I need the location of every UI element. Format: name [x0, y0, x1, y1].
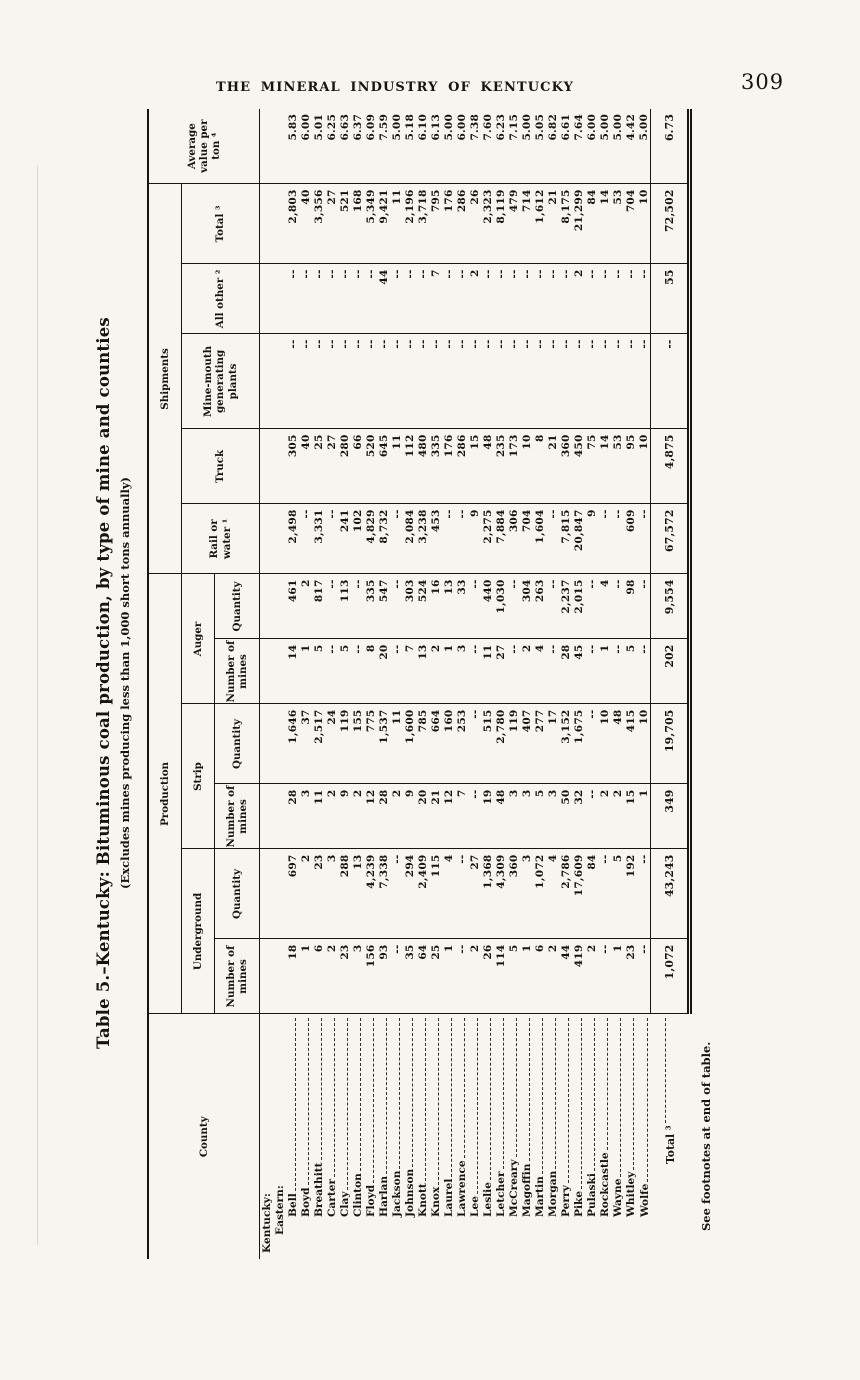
leader-line: [307, 1019, 309, 1186]
all-other-cell: --: [507, 264, 520, 334]
total-auger-quantity: 9,554: [651, 574, 690, 639]
leader-line: [541, 1019, 543, 1175]
table-row: Wayne 1 5 2 48 -- -- -- 53 -- -- 53 5.00: [611, 109, 624, 1259]
leader-line: [664, 1019, 666, 1124]
average-value-cell: 7.64: [572, 109, 585, 184]
table-row: Clay 23 288 9 119 5 113 241 280 -- -- 52…: [338, 109, 351, 1259]
mine-mouth-cell: --: [338, 334, 351, 429]
all-other-cell: --: [520, 264, 533, 334]
county-label: Boyd: [301, 1187, 312, 1259]
underground-quantity-cell: 4,239: [364, 849, 377, 939]
county-label: McCreary: [509, 1159, 520, 1259]
leader-line: [515, 1019, 517, 1158]
county-label: Rockcastle: [600, 1152, 611, 1259]
auger-quantity-cell: 524: [416, 574, 429, 639]
county-cell: McCreary: [507, 1014, 520, 1259]
table-row: Lawrence -- -- 7 253 3 33 -- 286 -- -- 2…: [455, 109, 468, 1259]
underground-quantity-cell: 2,409: [416, 849, 429, 939]
mine-mouth-cell: --: [559, 334, 572, 429]
underground-quantity-cell: 23: [312, 849, 325, 939]
truck-cell: 27: [325, 429, 338, 504]
truck-cell: 48: [481, 429, 494, 504]
auger-quantity-cell: [273, 574, 286, 639]
county-cell: Leslie: [481, 1014, 494, 1259]
strip-quantity-cell: 1,600: [403, 704, 416, 784]
total-cell: 3,356: [312, 184, 325, 264]
rail-or-water-cell: --: [299, 504, 312, 574]
county-cell: Rockcastle: [598, 1014, 611, 1259]
mine-mouth-cell: --: [572, 334, 585, 429]
auger-quantity-cell: 1,030: [494, 574, 507, 639]
county-label: Pike: [574, 1191, 585, 1259]
underground-number-cell: 1: [611, 939, 624, 1014]
auger-number-cell: 1: [442, 639, 455, 704]
mine-mouth-cell: --: [533, 334, 546, 429]
average-value-cell: [260, 109, 274, 184]
rail-or-water-cell: 20,847: [572, 504, 585, 574]
underground-quantity-cell: 5: [611, 849, 624, 939]
total-cell: 40: [299, 184, 312, 264]
table-footnote: See footnotes at end of table.: [699, 107, 713, 1231]
table-row: Floyd 156 4,239 12 775 8 335 4,829 520 -…: [364, 109, 377, 1259]
strip-number-cell: 21: [429, 784, 442, 849]
underground-quantity-cell: 288: [338, 849, 351, 939]
underground-number-cell: 25: [429, 939, 442, 1014]
auger-number-cell: 13: [416, 639, 429, 704]
running-head: THE MINERAL INDUSTRY OF KENTUCKY: [216, 80, 574, 95]
auger-quantity-cell: 303: [403, 574, 416, 639]
all-other-cell: --: [637, 264, 651, 334]
auger-number-cell: --: [390, 639, 403, 704]
table-header: County Production Shipments Average valu…: [148, 109, 260, 1259]
mine-mouth-cell: --: [442, 334, 455, 429]
underground-quantity-cell: 3: [325, 849, 338, 939]
strip-quantity-cell: [273, 704, 286, 784]
table-footer: Total ³ 1,072 43,243 349 19,705 202 9,55…: [651, 109, 690, 1259]
county-label: Letcher: [496, 1171, 507, 1259]
total-cell: 714: [520, 184, 533, 264]
county-cell: Bell: [286, 1014, 299, 1259]
table-row: Letcher 114 4,309 48 2,780 27 1,030 7,88…: [494, 109, 507, 1259]
strip-number-cell: 32: [572, 784, 585, 849]
auger-quantity-cell: 2,015: [572, 574, 585, 639]
underground-quantity-cell: 2,786: [559, 849, 572, 939]
header-underground-quantity: Quantity: [215, 849, 260, 939]
auger-number-cell: --: [468, 639, 481, 704]
underground-number-cell: 1: [299, 939, 312, 1014]
leader-line: [646, 1019, 648, 1182]
auger-quantity-cell: --: [351, 574, 364, 639]
strip-quantity-cell: 3,152: [559, 704, 572, 784]
county-cell: Boyd: [299, 1014, 312, 1259]
strip-number-cell: 2: [351, 784, 364, 849]
strip-quantity-cell: 10: [637, 704, 651, 784]
truck-cell: 335: [429, 429, 442, 504]
strip-quantity-cell: 119: [338, 704, 351, 784]
all-other-cell: 2: [468, 264, 481, 334]
auger-quantity-cell: 16: [429, 574, 442, 639]
county-cell: Pulaski: [585, 1014, 598, 1259]
header-truck: Truck: [182, 429, 260, 504]
total-cell: 521: [338, 184, 351, 264]
underground-quantity-cell: 27: [468, 849, 481, 939]
auger-number-cell: 45: [572, 639, 585, 704]
mine-mouth-cell: --: [286, 334, 299, 429]
all-other-cell: --: [533, 264, 546, 334]
average-value-cell: 6.82: [546, 109, 559, 184]
all-other-cell: --: [390, 264, 403, 334]
underground-number-cell: 35: [403, 939, 416, 1014]
all-other-cell: --: [325, 264, 338, 334]
strip-quantity-cell: 24: [325, 704, 338, 784]
total-auger-number: 202: [651, 639, 690, 704]
auger-number-cell: 3: [455, 639, 468, 704]
underground-number-cell: 44: [559, 939, 572, 1014]
truck-cell: 15: [468, 429, 481, 504]
header-strip-quantity: Quantity: [215, 704, 260, 784]
underground-quantity-cell: 1,072: [533, 849, 546, 939]
auger-quantity-cell: 113: [338, 574, 351, 639]
county-label: Johnson: [405, 1169, 416, 1259]
auger-quantity-cell: 304: [520, 574, 533, 639]
strip-quantity-cell: 2,517: [312, 704, 325, 784]
average-value-cell: 4.42: [624, 109, 637, 184]
strip-quantity-cell: 1,537: [377, 704, 390, 784]
leader-line: [294, 1019, 296, 1192]
underground-quantity-cell: 4: [546, 849, 559, 939]
auger-quantity-cell: 13: [442, 574, 455, 639]
table-row: Perry 44 2,786 50 3,152 28 2,237 7,815 3…: [559, 109, 572, 1259]
all-other-cell: --: [598, 264, 611, 334]
auger-number-cell: --: [611, 639, 624, 704]
underground-quantity-cell: 4: [442, 849, 455, 939]
all-other-cell: --: [416, 264, 429, 334]
table-row: Whitley 23 192 15 415 5 98 609 95 -- -- …: [624, 109, 637, 1259]
underground-number-cell: 2: [585, 939, 598, 1014]
mine-mouth-cell: --: [637, 334, 651, 429]
total-all-other: 55: [651, 264, 690, 334]
strip-number-cell: 3: [507, 784, 520, 849]
table-row: Harlan 93 7,338 28 1,537 20 547 8,732 64…: [377, 109, 390, 1259]
leader-line: [476, 1019, 478, 1195]
truck-cell: 95: [624, 429, 637, 504]
truck-cell: 21: [546, 429, 559, 504]
strip-quantity-cell: 785: [416, 704, 429, 784]
average-value-cell: 5.18: [403, 109, 416, 184]
truck-cell: 10: [637, 429, 651, 504]
total-cell: 3,718: [416, 184, 429, 264]
mine-mouth-cell: [260, 334, 274, 429]
strip-quantity-cell: 17: [546, 704, 559, 784]
average-value-cell: 6.63: [338, 109, 351, 184]
strip-quantity-cell: 277: [533, 704, 546, 784]
strip-number-cell: 15: [624, 784, 637, 849]
table-row: Magoffin 1 3 3 407 2 304 704 10 -- -- 71…: [520, 109, 533, 1259]
county-label: Bell: [288, 1193, 299, 1259]
all-other-cell: --: [611, 264, 624, 334]
underground-quantity-cell: 3: [520, 849, 533, 939]
rail-or-water-cell: 704: [520, 504, 533, 574]
county-label: Carter: [327, 1179, 338, 1259]
scanned-document-page: THE MINERAL INDUSTRY OF KENTUCKY 309 Tab…: [0, 0, 860, 1380]
scan-gutter-artifact: [37, 165, 38, 1245]
rail-or-water-cell: 8,732: [377, 504, 390, 574]
underground-number-cell: 419: [572, 939, 585, 1014]
county-label: Harlan: [379, 1176, 390, 1259]
table-row: Carter 2 3 2 24 -- -- -- 27 -- -- 27 6.2…: [325, 109, 338, 1259]
county-cell: Clay: [338, 1014, 351, 1259]
county-cell: Letcher: [494, 1014, 507, 1259]
total-cell: 5,349: [364, 184, 377, 264]
county-label: Wayne: [613, 1179, 624, 1259]
rail-or-water-cell: 9: [585, 504, 598, 574]
mine-mouth-cell: --: [429, 334, 442, 429]
average-value-cell: 5.00: [637, 109, 651, 184]
truck-cell: 520: [364, 429, 377, 504]
all-other-cell: --: [351, 264, 364, 334]
all-other-cell: --: [338, 264, 351, 334]
average-value-cell: 6.00: [299, 109, 312, 184]
county-cell: Wolfe: [637, 1014, 651, 1259]
leader-line: [346, 1019, 348, 1190]
rail-or-water-cell: [273, 504, 286, 574]
total-cell: 11: [390, 184, 403, 264]
county-cell: Breathitt: [312, 1014, 325, 1259]
table-row: Leslie 26 1,368 19 515 11 440 2,275 48 -…: [481, 109, 494, 1259]
leader-line: [385, 1019, 387, 1174]
auger-number-cell: 5: [312, 639, 325, 704]
underground-quantity-cell: 4,309: [494, 849, 507, 939]
strip-number-cell: 48: [494, 784, 507, 849]
strip-number-cell: 11: [312, 784, 325, 849]
county-label: Kentucky:: [262, 1193, 273, 1259]
total-cell: 479: [507, 184, 520, 264]
total-cell: [273, 184, 286, 264]
rail-or-water-cell: 102: [351, 504, 364, 574]
strip-quantity-cell: 11: [390, 704, 403, 784]
auger-quantity-cell: --: [546, 574, 559, 639]
leader-line: [567, 1019, 569, 1184]
average-value-cell: 6.00: [455, 109, 468, 184]
auger-quantity-cell: [260, 574, 274, 639]
all-other-cell: --: [403, 264, 416, 334]
strip-number-cell: [273, 784, 286, 849]
rail-or-water-cell: 4,829: [364, 504, 377, 574]
underground-number-cell: [273, 939, 286, 1014]
mine-mouth-cell: --: [312, 334, 325, 429]
auger-number-cell: 11: [481, 639, 494, 704]
county-label: Magoffin: [522, 1164, 533, 1260]
underground-number-cell: 5: [507, 939, 520, 1014]
underground-number-cell: 23: [624, 939, 637, 1014]
county-label: Eastern:: [275, 1185, 286, 1259]
all-other-cell: --: [442, 264, 455, 334]
auger-number-cell: --: [546, 639, 559, 704]
leader-line: [606, 1019, 608, 1151]
auger-quantity-cell: 33: [455, 574, 468, 639]
total-row: Total ³ 1,072 43,243 349 19,705 202 9,55…: [651, 109, 690, 1259]
leader-line: [528, 1019, 530, 1162]
truck-cell: [260, 429, 274, 504]
underground-quantity-cell: --: [598, 849, 611, 939]
all-other-cell: --: [286, 264, 299, 334]
auger-quantity-cell: 98: [624, 574, 637, 639]
strip-quantity-cell: 160: [442, 704, 455, 784]
strip-number-cell: 2: [611, 784, 624, 849]
leader-line: [632, 1019, 634, 1170]
average-value-cell: 6.10: [416, 109, 429, 184]
table-row: Pulaski 2 84 -- -- -- -- 9 75 -- -- 84 6…: [585, 109, 598, 1259]
mine-mouth-cell: --: [546, 334, 559, 429]
total-cell: 168: [351, 184, 364, 264]
mine-mouth-cell: --: [364, 334, 377, 429]
county-label: Lawrence: [457, 1160, 468, 1259]
auger-number-cell: 5: [338, 639, 351, 704]
auger-number-cell: 28: [559, 639, 572, 704]
table-row: Clinton 3 13 2 155 -- -- 102 66 -- -- 16…: [351, 109, 364, 1259]
truck-cell: 75: [585, 429, 598, 504]
county-cell: Kentucky:: [260, 1014, 274, 1259]
average-value-cell: 5.00: [390, 109, 403, 184]
underground-number-cell: --: [390, 939, 403, 1014]
leader-line: [398, 1019, 400, 1169]
strip-number-cell: 12: [364, 784, 377, 849]
underground-quantity-cell: 13: [351, 849, 364, 939]
county-label: Knott: [418, 1183, 429, 1259]
underground-quantity-cell: 115: [429, 849, 442, 939]
rotated-table-block: Table 5.–Kentucky: Bituminous coal produ…: [86, 107, 718, 1259]
header-auger-number: Number of mines: [215, 639, 260, 704]
all-other-cell: [260, 264, 274, 334]
truck-cell: 645: [377, 429, 390, 504]
table-row: Eastern:: [273, 109, 286, 1259]
truck-cell: 112: [403, 429, 416, 504]
truck-cell: 450: [572, 429, 585, 504]
county-cell: Lawrence: [455, 1014, 468, 1259]
strip-number-cell: --: [468, 784, 481, 849]
rail-or-water-cell: 1,604: [533, 504, 546, 574]
auger-quantity-cell: --: [468, 574, 481, 639]
county-label: Breathitt: [314, 1162, 325, 1259]
average-value-cell: 7.38: [468, 109, 481, 184]
average-value-cell: 6.00: [585, 109, 598, 184]
header-underground-number: Number of mines: [215, 939, 260, 1014]
average-value-cell: 5.00: [442, 109, 455, 184]
auger-quantity-cell: 547: [377, 574, 390, 639]
rail-or-water-cell: 241: [338, 504, 351, 574]
strip-quantity-cell: 664: [429, 704, 442, 784]
underground-quantity-cell: 7,338: [377, 849, 390, 939]
average-value-cell: 5.00: [611, 109, 624, 184]
strip-number-cell: 9: [403, 784, 416, 849]
county-label: Pulaski: [587, 1173, 598, 1259]
underground-quantity-cell: 192: [624, 849, 637, 939]
all-other-cell: --: [585, 264, 598, 334]
leader-line: [424, 1019, 426, 1182]
average-value-cell: 7.15: [507, 109, 520, 184]
auger-number-cell: 4: [533, 639, 546, 704]
mine-mouth-cell: --: [585, 334, 598, 429]
total-cell: 14: [598, 184, 611, 264]
total-cell: 2,323: [481, 184, 494, 264]
average-value-cell: 5.01: [312, 109, 325, 184]
total-mine-mouth: --: [651, 334, 690, 429]
county-label: Morgan: [548, 1171, 559, 1259]
average-value-cell: 7.59: [377, 109, 390, 184]
auger-quantity-cell: --: [390, 574, 403, 639]
county-cell: Magoffin: [520, 1014, 533, 1259]
total-cell: 176: [442, 184, 455, 264]
county-label: Jackson: [392, 1171, 403, 1259]
header-total: Total ³: [182, 184, 260, 264]
rail-or-water-cell: --: [325, 504, 338, 574]
truck-cell: 280: [338, 429, 351, 504]
county-cell: Knott: [416, 1014, 429, 1259]
auger-number-cell: 27: [494, 639, 507, 704]
average-value-cell: 5.83: [286, 109, 299, 184]
county-cell: Laurel: [442, 1014, 455, 1259]
underground-quantity-cell: 294: [403, 849, 416, 939]
auger-number-cell: 7: [403, 639, 416, 704]
county-label: Lee: [470, 1196, 481, 1259]
underground-number-cell: 26: [481, 939, 494, 1014]
all-other-cell: --: [455, 264, 468, 334]
county-cell: Morgan: [546, 1014, 559, 1259]
leader-line: [554, 1019, 556, 1169]
county-label: Martin: [535, 1176, 546, 1259]
table-row: Bell 18 697 28 1,646 14 461 2,498 305 --…: [286, 109, 299, 1259]
header-strip-number: Number of mines: [215, 784, 260, 849]
auger-quantity-cell: 461: [286, 574, 299, 639]
total-cell: 26: [468, 184, 481, 264]
mine-mouth-cell: --: [351, 334, 364, 429]
auger-number-cell: 2: [520, 639, 533, 704]
underground-number-cell: 6: [533, 939, 546, 1014]
rail-or-water-cell: 7,815: [559, 504, 572, 574]
header-auger-quantity: Quantity: [215, 574, 260, 639]
underground-quantity-cell: 2: [299, 849, 312, 939]
leader-line: [320, 1019, 322, 1161]
truck-cell: 305: [286, 429, 299, 504]
auger-number-cell: 5: [624, 639, 637, 704]
total-underground-number: 1,072: [651, 939, 690, 1014]
total-truck: 4,875: [651, 429, 690, 504]
strip-number-cell: 2: [325, 784, 338, 849]
table-row: Knox 25 115 21 664 2 16 453 335 -- 7 795…: [429, 109, 442, 1259]
mine-mouth-cell: --: [416, 334, 429, 429]
average-value-cell: 7.60: [481, 109, 494, 184]
county-cell: Carter: [325, 1014, 338, 1259]
auger-number-cell: 1: [299, 639, 312, 704]
all-other-cell: --: [494, 264, 507, 334]
leader-line: [619, 1019, 621, 1177]
strip-number-cell: 19: [481, 784, 494, 849]
total-label: Total ³: [664, 1125, 677, 1259]
underground-quantity-cell: 1,368: [481, 849, 494, 939]
truck-cell: 8: [533, 429, 546, 504]
leader-line: [450, 1019, 452, 1177]
average-value-cell: 6.23: [494, 109, 507, 184]
total-cell: 286: [455, 184, 468, 264]
rail-or-water-cell: --: [637, 504, 651, 574]
table-row: Kentucky:: [260, 109, 274, 1259]
table-row: Wolfe -- -- 1 10 -- -- -- 10 -- -- 10 5.…: [637, 109, 651, 1259]
county-cell: Knox: [429, 1014, 442, 1259]
strip-quantity-cell: 407: [520, 704, 533, 784]
auger-number-cell: 8: [364, 639, 377, 704]
table-row: Jackson -- -- 2 11 -- -- -- 11 -- -- 11 …: [390, 109, 403, 1259]
table-row: Pike 419 17,609 32 1,675 45 2,015 20,847…: [572, 109, 585, 1259]
